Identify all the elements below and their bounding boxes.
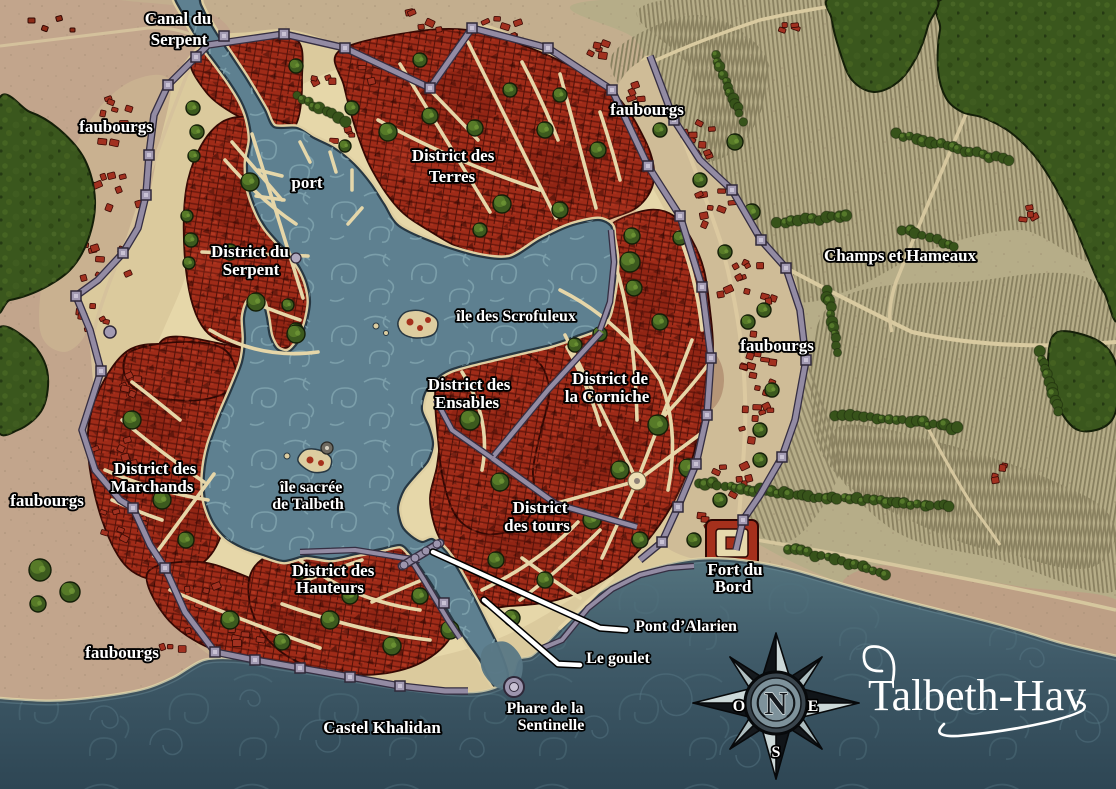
svg-text:Sentinelle: Sentinelle bbox=[518, 717, 585, 734]
svg-text:District des: District des bbox=[428, 375, 511, 394]
svg-text:port: port bbox=[291, 173, 323, 192]
svg-text:Castel Khalidan: Castel Khalidan bbox=[323, 718, 441, 737]
svg-text:faubourgs: faubourgs bbox=[740, 336, 814, 355]
svg-text:île des Scrofuleux: île des Scrofuleux bbox=[455, 308, 576, 325]
svg-text:de Talbeth: de Talbeth bbox=[272, 496, 344, 513]
svg-text:Serpent: Serpent bbox=[151, 30, 208, 49]
svg-text:District des: District des bbox=[114, 459, 197, 478]
svg-text:O: O bbox=[733, 698, 745, 715]
svg-text:S: S bbox=[772, 744, 781, 761]
svg-text:District de: District de bbox=[572, 369, 648, 388]
svg-text:faubourgs: faubourgs bbox=[79, 117, 153, 136]
svg-text:la Corniche: la Corniche bbox=[565, 387, 650, 406]
svg-text:District des: District des bbox=[412, 146, 495, 165]
svg-text:Terres: Terres bbox=[429, 167, 476, 186]
svg-text:faubourgs: faubourgs bbox=[10, 491, 84, 510]
svg-text:Hauteurs: Hauteurs bbox=[296, 578, 364, 597]
svg-text:Serpent: Serpent bbox=[223, 260, 280, 279]
svg-text:Pont d’Alarien: Pont d’Alarien bbox=[635, 618, 737, 635]
svg-text:Marchands: Marchands bbox=[111, 477, 194, 496]
svg-text:Phare de la: Phare de la bbox=[506, 700, 583, 717]
svg-text:E: E bbox=[808, 698, 819, 715]
svg-text:des tours: des tours bbox=[504, 516, 570, 535]
svg-text:Bord: Bord bbox=[715, 577, 752, 596]
svg-text:N: N bbox=[764, 685, 787, 721]
svg-text:faubourgs: faubourgs bbox=[610, 100, 684, 119]
svg-text:Le goulet: Le goulet bbox=[586, 650, 650, 667]
svg-text:District du: District du bbox=[211, 242, 289, 261]
svg-text:île sacrée: île sacrée bbox=[279, 479, 343, 496]
svg-text:Canal du: Canal du bbox=[145, 9, 212, 28]
svg-text:Ensables: Ensables bbox=[435, 393, 500, 412]
svg-text:Champs et Hameaux: Champs et Hameaux bbox=[824, 246, 977, 265]
svg-text:Talbeth-Hav: Talbeth-Hav bbox=[868, 671, 1086, 720]
svg-text:District: District bbox=[513, 498, 568, 517]
svg-text:faubourgs: faubourgs bbox=[85, 643, 159, 662]
